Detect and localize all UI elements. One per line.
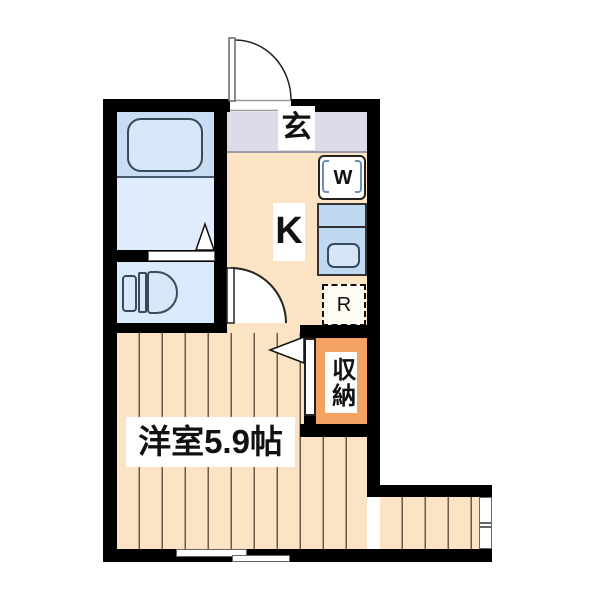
main-room-label: 洋室5.9帖 [126,417,295,467]
door-swing-overlay [0,0,600,600]
closet-door-arrow-icon [270,337,304,363]
floor-plan-canvas: W R [0,0,600,600]
kitchen-door-icon [227,268,286,323]
bath-door-triangle-icon [196,224,214,250]
kitchen-label: K [273,203,305,261]
entrance-label: 玄 [278,106,315,150]
entrance-door-icon [229,38,291,112]
closet-label: 収納 [325,352,357,413]
